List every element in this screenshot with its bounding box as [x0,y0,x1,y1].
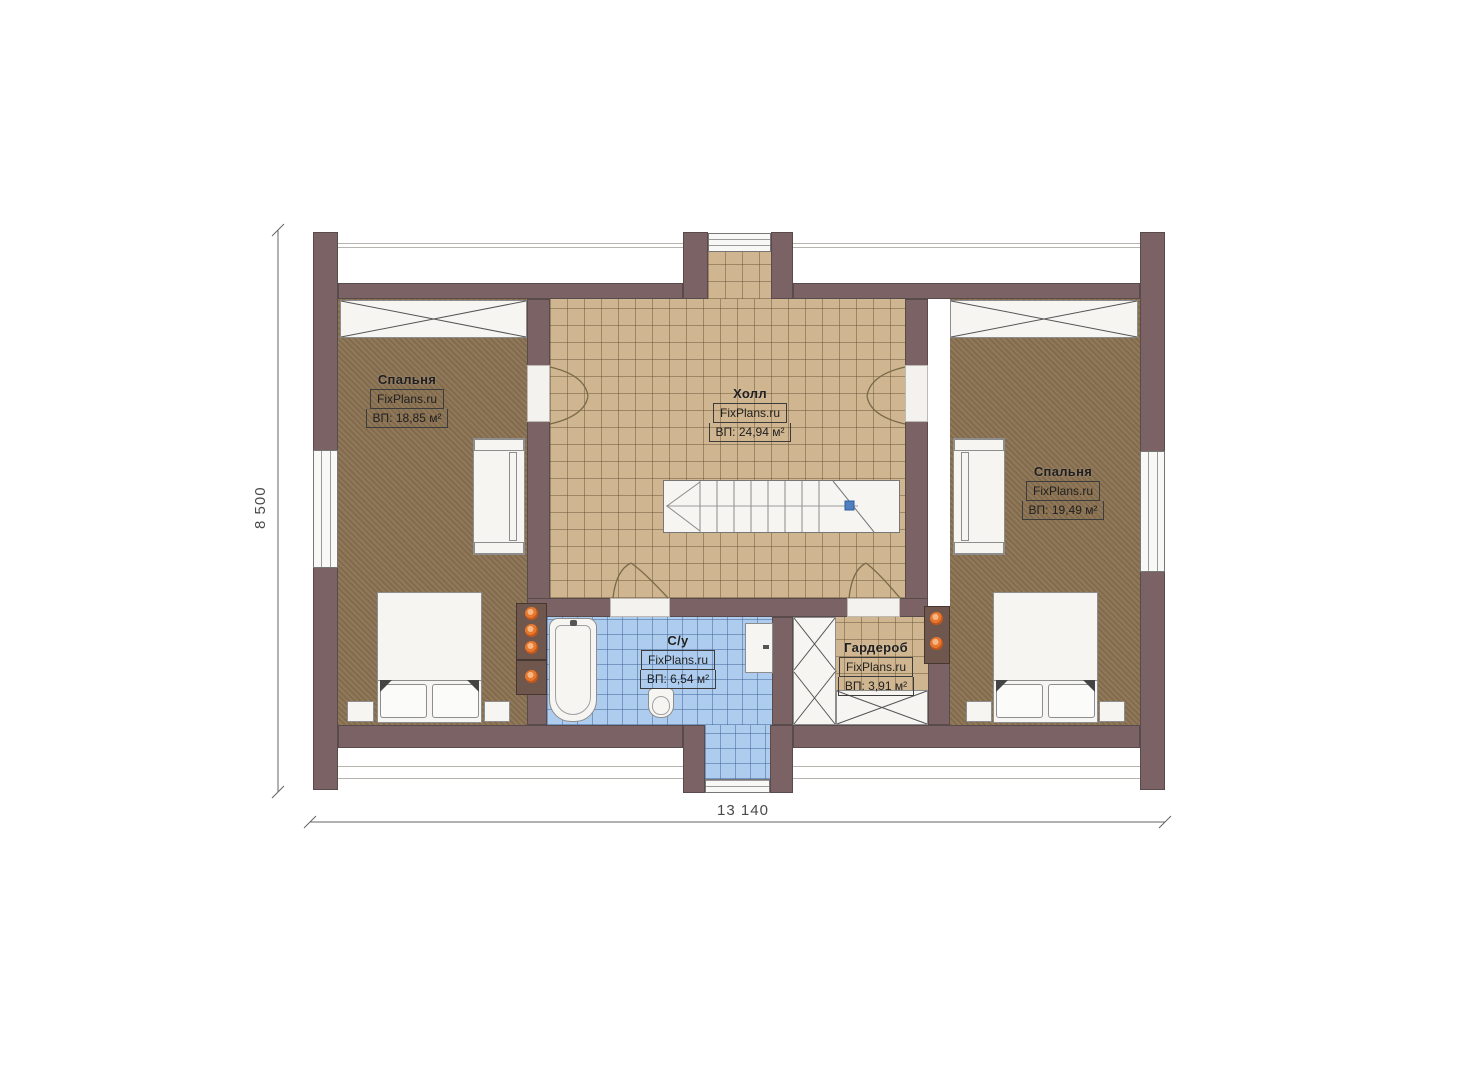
toilet [648,688,674,718]
bay-top-wall-right [771,232,793,299]
wall-bath-wardrobe [772,617,793,725]
watermark: FixPlans.ru [713,403,787,423]
flue-vent-icon [525,624,538,637]
flue-vent-icon [930,612,943,625]
room-area: ВП: 3,91 м² [838,677,914,696]
dimension-horizontal: 13 140 [698,802,788,819]
flue-vent-icon [930,637,943,650]
watermark: FixPlans.ru [1026,481,1100,501]
wall-top-left [338,283,683,299]
flue-vent-icon [525,607,538,620]
bathtub-faucet-icon [570,620,577,626]
nightstand [1099,701,1125,722]
closet-bedroom-left [340,300,527,338]
nightstand [484,701,510,722]
hall-bay-floor [708,250,771,299]
closet-bedroom-right [950,300,1138,338]
bay-top-wall-left [683,232,708,299]
flue-vent-icon [525,670,538,683]
watermark: FixPlans.ru [839,657,913,677]
room-label-bedroom-right: Спальня FixPlans.ru ВП: 19,49 м² [1008,464,1118,520]
bathroom-bay-floor [705,725,770,779]
room-name: Спальня [378,372,436,387]
floor-plan: Спальня FixPlans.ru ВП: 18,85 м² Холл Fi… [0,0,1474,1080]
room-area: ВП: 6,54 м² [640,670,716,689]
wall-bottom-right [793,725,1140,748]
hall-floor [550,299,905,598]
window-bay-top [708,233,771,252]
room-name: Гардероб [844,640,908,655]
room-label-bedroom-left: Спальня FixPlans.ru ВП: 18,85 м² [352,372,462,428]
staircase [663,480,900,533]
pillow [996,684,1043,718]
bathtub [549,618,597,722]
door-bedroom-left [527,365,550,422]
nightstand [347,701,374,722]
door-bathroom [610,598,670,617]
room-name: С/у [667,633,688,648]
nightstand [966,701,992,722]
room-label-bathroom: С/у FixPlans.ru ВП: 6,54 м² [628,633,728,689]
flue-vent-icon [525,641,538,654]
wall-hall-bedroom-right [905,299,928,617]
sofa-right [953,438,1005,555]
watermark: FixPlans.ru [641,650,715,670]
window-right [1140,451,1165,572]
door-wardrobe [847,598,900,617]
wall-bottom-left [338,725,683,748]
dimension-vertical: 8 500 [252,468,269,548]
wall-top-right [793,283,1140,299]
room-name: Холл [733,386,767,401]
sink-cabinet [745,623,773,673]
room-name: Спальня [1034,464,1092,479]
room-area: ВП: 19,49 м² [1022,501,1105,520]
bay-bottom-wall-right [770,725,793,793]
pillow [432,684,479,718]
room-label-hall: Холл FixPlans.ru ВП: 24,94 м² [695,386,805,442]
wall-hall-bedroom-left [527,299,550,617]
sofa-left [473,438,525,555]
pillow [1048,684,1095,718]
door-bedroom-right [905,365,928,422]
room-area: ВП: 18,85 м² [366,409,449,428]
window-bay-bottom [705,779,770,793]
window-left [313,450,338,568]
room-area: ВП: 24,94 м² [709,423,792,442]
bay-bottom-wall-left [683,725,705,793]
pillow [380,684,427,718]
watermark: FixPlans.ru [370,389,444,409]
room-label-wardrobe: Гардероб FixPlans.ru ВП: 3,91 м² [826,640,926,696]
